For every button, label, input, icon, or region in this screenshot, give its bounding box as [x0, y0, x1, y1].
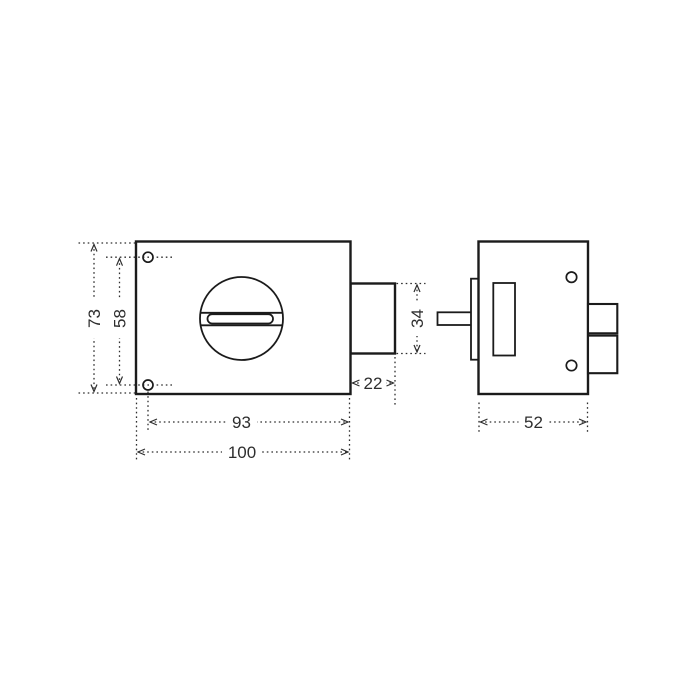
dimension-label-93: 93 [232, 413, 251, 432]
dimension-label-52: 52 [524, 413, 543, 432]
side-screw-hole-top [566, 272, 576, 282]
technical-drawing-canvas: 73 58 93 100 22 34 [0, 0, 700, 700]
dimension-case-depth: 52 [479, 403, 588, 434]
side-bolt-block-upper [588, 304, 617, 333]
dimension-label-58: 58 [111, 309, 130, 328]
side-bolt-block-lower [588, 336, 617, 374]
dimension-label-73: 73 [85, 309, 104, 328]
side-spindle-bar [438, 312, 474, 325]
knob-thumb-turn-slot [208, 314, 274, 323]
dimension-bolt-height: 34 [397, 284, 428, 354]
dimension-bolt-depth: 22 [353, 357, 396, 407]
side-screw-hole-bottom [566, 360, 576, 370]
front-bolt-protrusion [351, 284, 396, 354]
front-view [136, 242, 395, 395]
dimension-label-34: 34 [408, 309, 427, 328]
dimension-label-100: 100 [228, 443, 256, 462]
side-view [438, 242, 618, 395]
drawing-area: 73 58 93 100 22 34 [0, 0, 700, 700]
side-inner-slot [493, 283, 515, 356]
dimension-label-22: 22 [364, 374, 383, 393]
